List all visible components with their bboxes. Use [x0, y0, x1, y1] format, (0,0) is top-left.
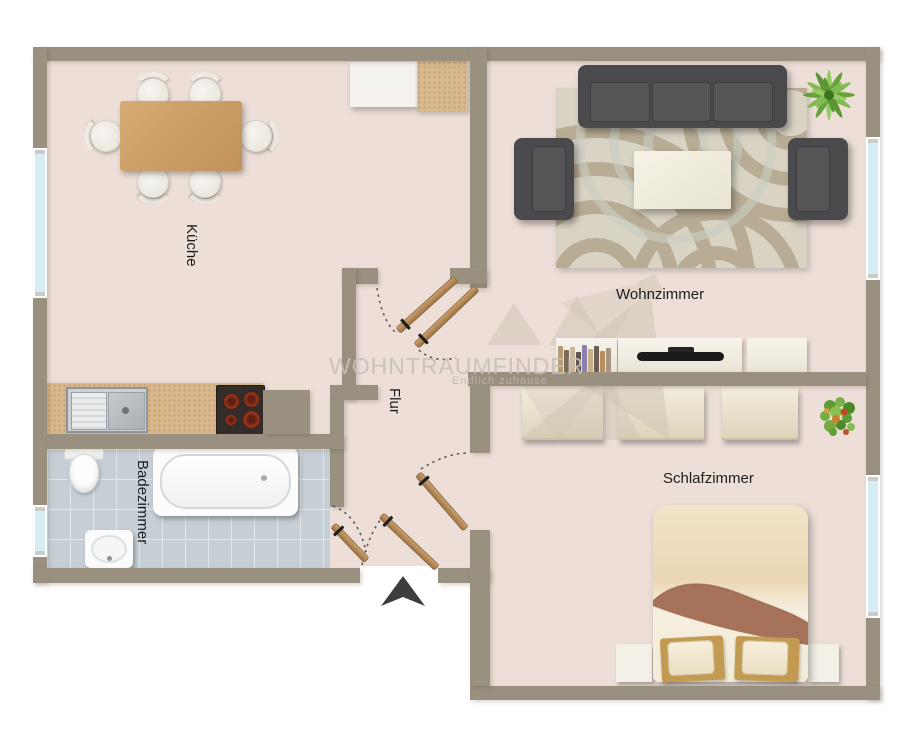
sink-drainboard — [71, 392, 107, 430]
kitchen-worktop-white — [350, 62, 417, 107]
burner-icon — [242, 410, 261, 429]
bathroom-sink-drain-icon — [107, 556, 112, 561]
window-bathroom — [33, 505, 47, 557]
armchair-cushion — [532, 146, 566, 212]
coffee-table — [634, 151, 731, 209]
pillow — [667, 640, 715, 676]
room-label-badezimmer: Badezimmer — [134, 460, 151, 544]
burner-icon — [243, 391, 260, 408]
bathroom-sink — [85, 530, 133, 568]
toilet-bowl — [69, 454, 99, 493]
room-label-wohnzimmer: Wohnzimmer — [616, 286, 704, 303]
room-label-schlafzimmer: Schlafzimmer — [663, 470, 754, 487]
sink-faucet-icon — [122, 407, 129, 414]
toilet — [64, 447, 104, 495]
dining-chair — [236, 116, 276, 156]
room-label-kueche: Küche — [183, 224, 200, 267]
wardrobe-panel — [618, 388, 704, 440]
nightstand-left — [616, 644, 652, 682]
wall — [342, 268, 356, 400]
wall — [33, 47, 880, 61]
wall — [33, 47, 47, 583]
kitchen-sink — [66, 387, 148, 433]
wall — [33, 568, 360, 583]
wardrobe-panel — [522, 388, 603, 440]
wall — [47, 434, 344, 449]
window-bedroom — [866, 475, 880, 618]
armchair-left — [514, 138, 574, 220]
bathtub-drain-icon — [261, 475, 267, 481]
chair-seat — [240, 120, 272, 152]
room-label-flur: Flur — [386, 388, 403, 414]
wall — [470, 686, 880, 700]
wall — [470, 530, 490, 686]
nightstand-right — [808, 644, 839, 682]
burner-icon — [223, 393, 240, 410]
palm-plant-icon — [800, 62, 858, 126]
watermark-tagline: Endlich zuhause — [452, 375, 548, 387]
tv-icon — [637, 352, 724, 361]
wall — [330, 385, 378, 400]
chair-seat — [90, 120, 122, 152]
pillow — [741, 640, 788, 676]
sofa-cushions — [590, 82, 773, 122]
wall — [450, 268, 487, 284]
sideboard — [747, 338, 807, 372]
wardrobe-panel — [722, 388, 798, 440]
window-kitchen — [33, 148, 47, 298]
kitchen-worktop-wood — [417, 60, 468, 112]
wall — [470, 386, 490, 453]
burner-icon — [225, 414, 237, 426]
armchair-right — [788, 138, 848, 220]
bathtub-basin — [160, 454, 291, 509]
double-bed — [653, 505, 808, 682]
stove-cooktop — [216, 385, 265, 436]
floor-plan: Küche Wohnzimmer Flur Badezimmer Schlafz… — [0, 0, 920, 739]
wall — [470, 47, 487, 288]
wall — [330, 400, 344, 507]
dining-table — [120, 101, 242, 171]
wall — [263, 390, 310, 434]
entrance-opening — [360, 566, 438, 584]
potted-plant-icon — [816, 394, 864, 440]
sofa — [578, 65, 787, 128]
armchair-cushion — [796, 146, 830, 212]
bathtub — [153, 447, 298, 516]
window-living-room — [866, 137, 880, 280]
